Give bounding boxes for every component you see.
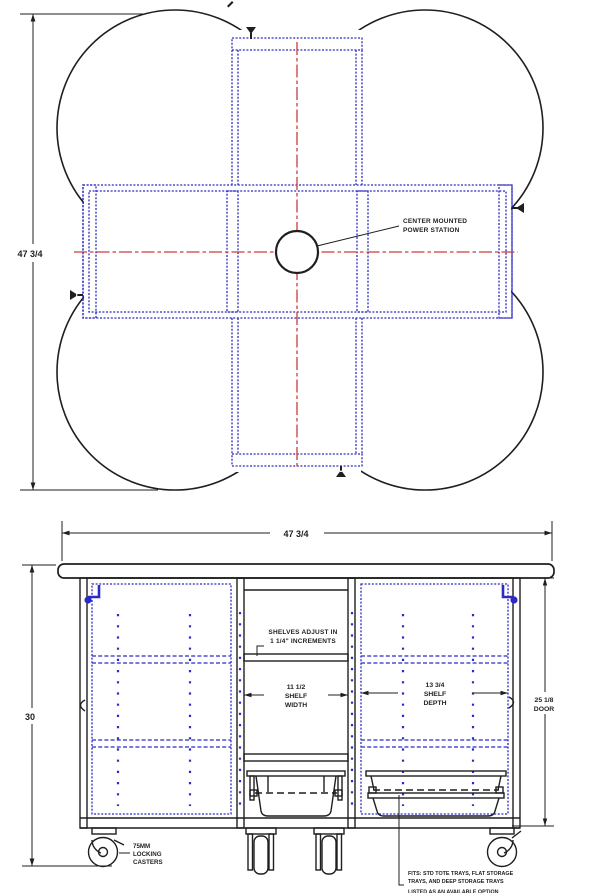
caster-note-line3: CASTERS [133, 859, 163, 866]
fits-note-line3: LISTED AS AN AVAILABLE OPTION [408, 890, 499, 893]
plan-view: CENTER MOUNTED POWER STATION 47 3/4 [10, 1, 543, 490]
front-width-dimension: 47 3/4 [62, 521, 552, 561]
front-width-dim-text: 47 3/4 [283, 529, 308, 539]
tabletop [58, 564, 554, 578]
shelf-depth-word1: SHELF [424, 691, 446, 698]
caster-right-swivel [488, 828, 522, 867]
fits-note-line2: TRAYS, AND DEEP STORAGE TRAYS [408, 879, 504, 885]
caster-note-line1: 75MM [133, 843, 150, 850]
shelf-width-word2: WIDTH [285, 702, 307, 709]
tote-tray-center [247, 771, 345, 816]
shelf-adjust-note: SHELVES ADJUST IN 1 1/4" INCREMENTS [257, 629, 338, 656]
cad-drawing-sheet: CENTER MOUNTED POWER STATION 47 3/4 47 3… [0, 0, 600, 893]
technical-drawing: CENTER MOUNTED POWER STATION 47 3/4 47 3… [0, 0, 600, 893]
shelf-depth-dimension: 13 3/4 SHELF DEPTH [361, 682, 508, 707]
shelf-note-line1: SHELVES ADJUST IN [268, 629, 337, 636]
shelf-note-line2: 1 1/4" INCREMENTS [270, 638, 336, 645]
power-station-label-line2: POWER STATION [403, 227, 460, 234]
caster-center-pair [246, 828, 344, 874]
fits-note-line1: FITS: STD TOTE TRAYS, FLAT STORAGE [408, 871, 514, 877]
front-height-dim-text: 30 [25, 712, 35, 722]
caster-left-swivel [89, 828, 125, 867]
door-knob-left [81, 700, 86, 711]
door-dim-word: DOOR [534, 706, 554, 713]
storage-tray-right [366, 771, 506, 816]
shelf-depth-value: 13 3/4 [426, 682, 445, 689]
hinge-top-right [503, 585, 518, 604]
front-height-dimension: 30 [22, 565, 112, 866]
caster-note: 75MM LOCKING CASTERS [119, 843, 163, 866]
shelf-width-value: 11 1/2 [287, 684, 306, 691]
power-station-label-line1: CENTER MOUNTED [403, 218, 467, 225]
caster-note-line2: LOCKING [133, 851, 162, 858]
shelf-width-word1: SHELF [285, 693, 307, 700]
tray-fits-note: FITS: STD TOTE TRAYS, FLAT STORAGE TRAYS… [399, 795, 514, 893]
power-station-circle [276, 231, 318, 273]
plan-height-dim-text: 47 3/4 [17, 249, 42, 259]
shelf-depth-word2: DEPTH [423, 700, 446, 707]
shelf-width-dimension: 11 1/2 SHELF WIDTH [244, 684, 348, 709]
door-dim-value: 25 1/8 [535, 697, 554, 704]
front-elevation: 47 3/4 [22, 521, 564, 893]
